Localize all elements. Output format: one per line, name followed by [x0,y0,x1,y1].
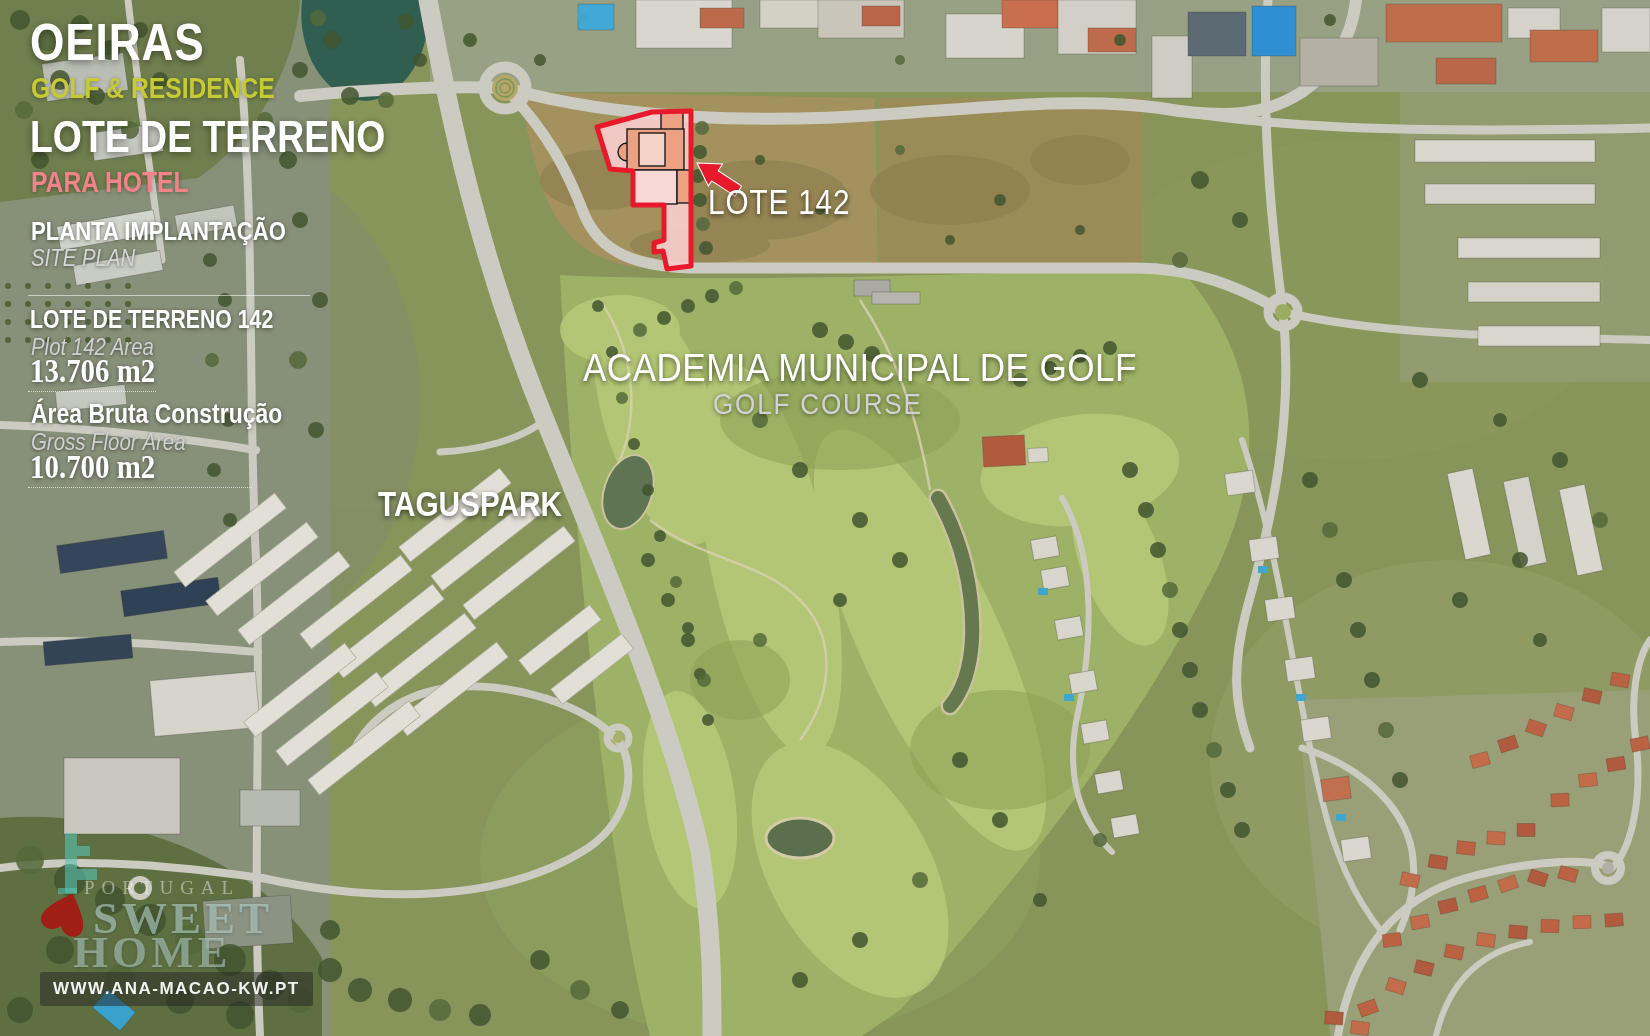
flyer-subheading: PARA HOTEL [31,166,216,199]
plot-area-value: 13.706 m2 [30,352,177,390]
label-golf-academy: ACADEMIA MUNICIPAL DE GOLF [583,346,1198,390]
label-lote-142: LOTE 142 [708,182,876,222]
label-golf-course: GOLF COURSE [713,388,946,421]
label-taguspark: TAGUSPARK [378,484,594,524]
divider-dotted [28,391,156,392]
section-title: PLANTA IMPLANTAÇÃO [31,216,331,247]
divider-dotted [28,487,252,488]
flyer-title: OEIRAS [30,12,235,72]
plot-area-label: LOTE DE TERRENO 142 [30,305,316,334]
section-subtitle: SITE PLAN [31,244,154,272]
brand-name-bottom: HOME [73,926,232,978]
divider [28,295,310,296]
website-url: WWW.ANA-MACAO-KW.PT [40,972,313,1006]
flyer-subtitle: GOLF & RESIDENCE [31,72,318,105]
gross-area-value: 10.700 m2 [30,448,177,486]
flyer-heading: LOTE DE TERRENO [30,112,448,162]
gross-area-label: Área Bruta Construção [31,399,327,430]
flyer-canvas: OEIRAS GOLF & RESIDENCE LOTE DE TERRENO … [0,0,1650,1036]
